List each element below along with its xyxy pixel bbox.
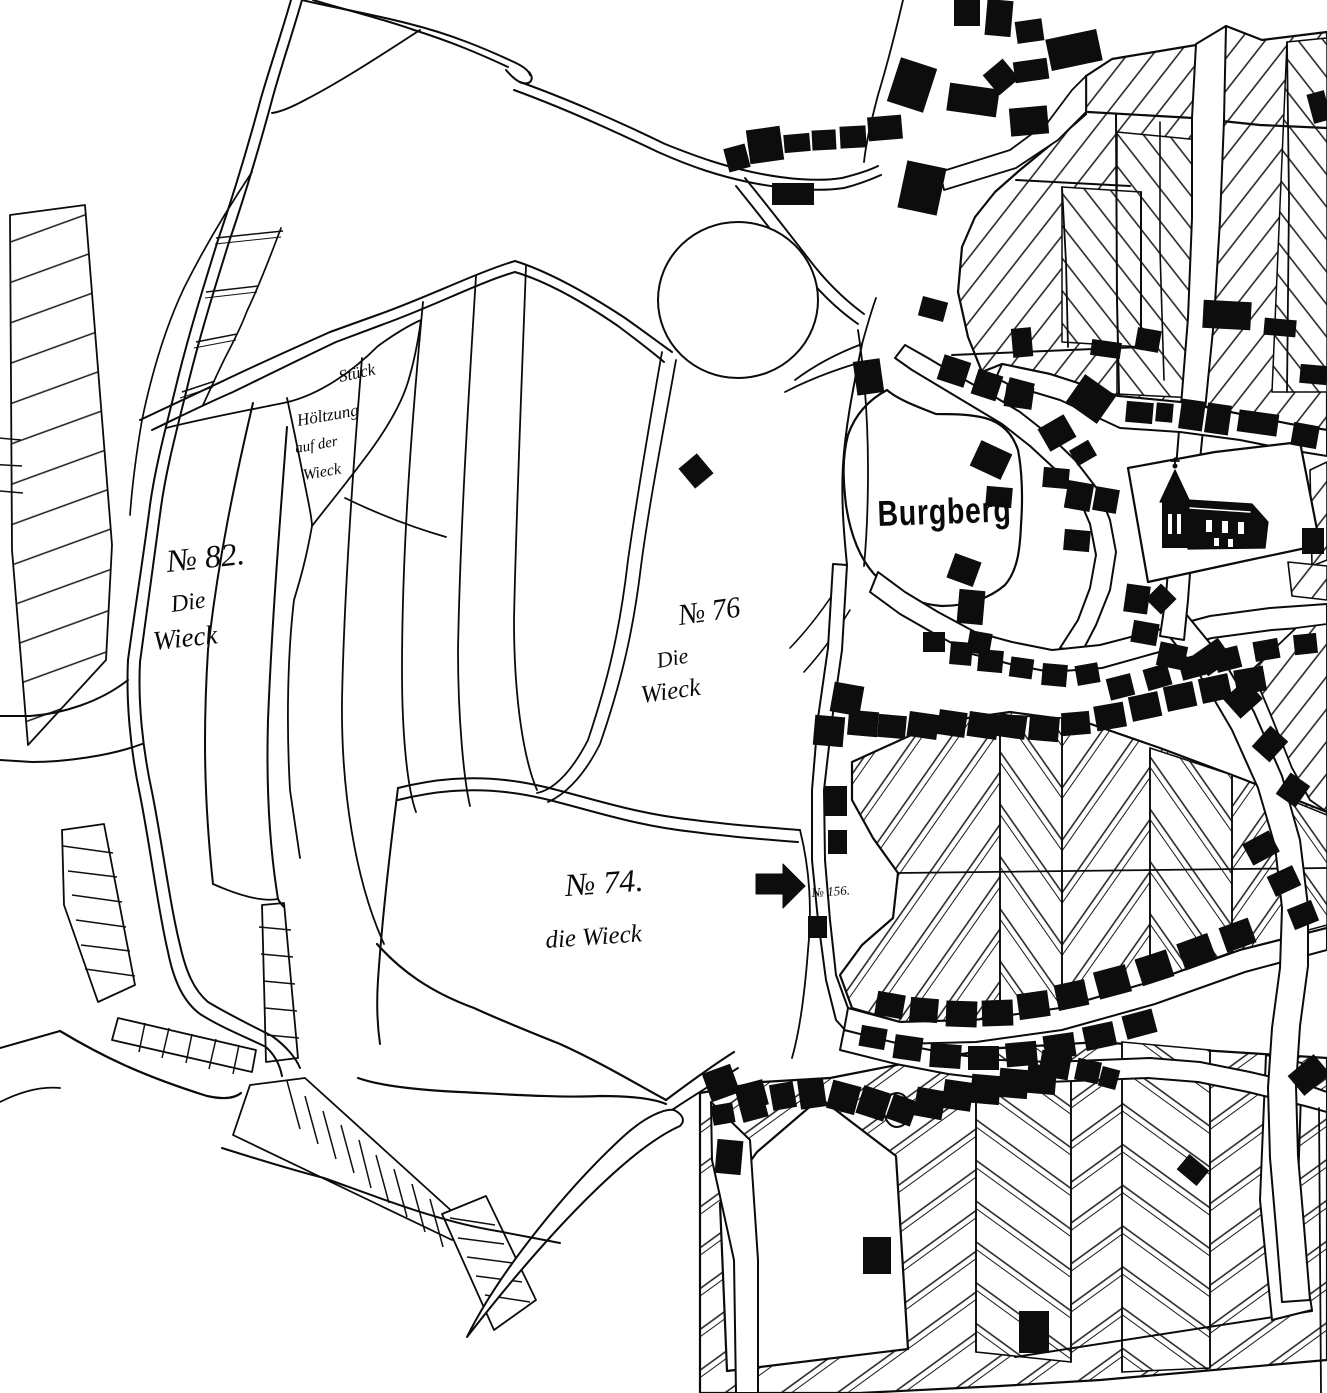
svg-text:Die: Die bbox=[168, 587, 207, 618]
svg-text:№ 156.: № 156. bbox=[810, 882, 850, 900]
svg-text:Burgberg: Burgberg bbox=[877, 488, 1012, 534]
svg-text:№ 74.: № 74. bbox=[563, 862, 644, 903]
